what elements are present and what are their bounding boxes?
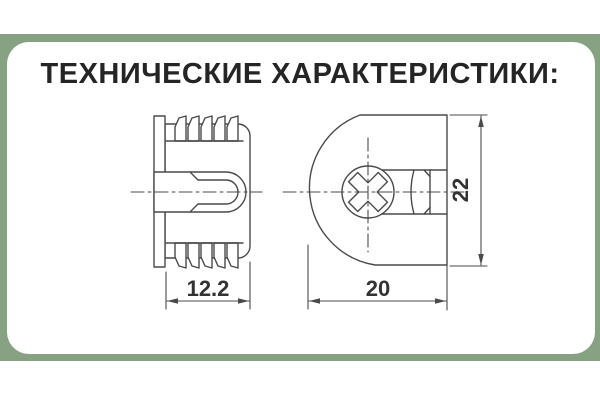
technical-drawing-canvas: 12.2 20 xyxy=(0,0,600,400)
side-top-ribs xyxy=(175,116,238,141)
side-depth-label: 12.2 xyxy=(187,276,230,301)
side-bottom-ribs xyxy=(175,243,238,268)
front-height-label: 22 xyxy=(448,178,473,202)
front-width-label: 20 xyxy=(366,276,390,301)
side-view-drawing: 12.2 xyxy=(131,116,262,309)
side-depth-dimension: 12.2 xyxy=(166,262,250,309)
front-height-dimension: 22 xyxy=(448,115,487,266)
front-view-drawing: 20 22 xyxy=(283,115,487,310)
